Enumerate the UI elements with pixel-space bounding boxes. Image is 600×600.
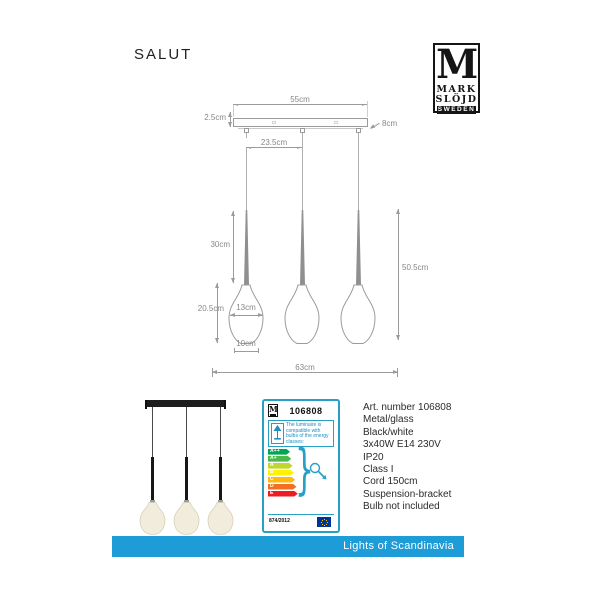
- rod-drawing: [356, 210, 361, 285]
- spec-line: Metal/glass: [363, 414, 451, 426]
- energy-label-brand-monogram: M: [269, 405, 277, 413]
- dimension-line: [233, 211, 234, 283]
- energy-class-bar-A+: A+: [268, 456, 291, 462]
- plate-mark: [272, 121, 276, 124]
- eu-flag-icon: [317, 517, 331, 527]
- footer-bar: Lights of Scandinavia: [112, 536, 464, 557]
- energy-class-bar-C: C: [268, 477, 295, 483]
- spec-line: Black/white: [363, 427, 451, 439]
- spec-line: Class I: [363, 464, 451, 476]
- energy-class-bar-B: B: [268, 470, 294, 476]
- cord-drawing: [358, 133, 359, 210]
- dimension-line: [233, 104, 367, 105]
- spec-line: Suspension-bracket: [363, 489, 451, 501]
- energy-class-label: A+: [268, 456, 291, 462]
- rod-drawing: [300, 210, 305, 285]
- energy-class-label: A++: [268, 449, 290, 455]
- energy-label-brand-bar: [270, 414, 276, 416]
- label-divider: [268, 514, 334, 515]
- dim-shade-width: 13cm: [229, 303, 263, 312]
- dim-plate-width: 55cm: [233, 95, 367, 104]
- shade-outline: [339, 284, 377, 345]
- ceiling-bar-photo: [145, 400, 226, 407]
- rod-drawing: [244, 210, 249, 285]
- energy-label-brand-logo: M: [268, 404, 278, 417]
- dimension-line: [217, 283, 218, 343]
- glass-shade-photo: [173, 502, 200, 535]
- product-datasheet: SALUT M MARK SLÖJD SWEDEN 55cm 2.5cm 8cm: [0, 0, 600, 600]
- cord-photo: [152, 407, 153, 458]
- plate-mark: [334, 121, 338, 124]
- dimension-line: [367, 101, 368, 117]
- spec-line: IP20: [363, 452, 451, 464]
- dimension-line: [212, 372, 398, 373]
- dimension-line: [398, 209, 399, 340]
- regulation-number: 874/2012: [269, 518, 290, 524]
- rod-photo: [185, 457, 188, 502]
- lamp-icon-box: [271, 423, 284, 444]
- brand-logo: M MARK SLÖJD SWEDEN: [433, 43, 480, 113]
- spec-line: Bulb not included: [363, 501, 451, 513]
- cord-photo: [186, 407, 187, 458]
- article-number: 106808: [278, 406, 334, 416]
- energy-class-label: C: [268, 477, 295, 483]
- dim-rod-length: 30cm: [198, 240, 230, 249]
- footer-label: Lights of Scandinavia: [343, 540, 464, 552]
- bulb-arrow-icon: [308, 461, 330, 483]
- spec-line: 3x40W E14 230V: [363, 439, 451, 451]
- eu-stars: [324, 522, 325, 523]
- energy-class-label: D: [268, 484, 297, 490]
- brand-country: SWEDEN: [437, 106, 476, 114]
- energy-class-bar-E: E: [268, 491, 298, 497]
- energy-class-bar-A: A: [268, 463, 293, 469]
- glass-shade-photo: [207, 502, 234, 535]
- cord-drawing: [302, 133, 303, 210]
- rod-photo: [151, 457, 154, 502]
- spec-line: Cord 150cm: [363, 476, 451, 488]
- specification-list: Art. number 106808Metal/glassBlack/white…: [363, 402, 451, 514]
- dimension-line: [230, 112, 231, 127]
- energy-class-bar-D: D: [268, 484, 297, 490]
- spec-line: Art. number 106808: [363, 402, 451, 414]
- dimension-line: [234, 351, 259, 352]
- cord-photo: [220, 407, 221, 458]
- table-lamp-icon: [273, 425, 282, 442]
- dim-drop-length: 50.5cm: [402, 263, 428, 272]
- energy-class-bar-A++: A++: [268, 449, 290, 455]
- energy-class-label: E: [268, 491, 298, 497]
- page-title: SALUT: [134, 46, 192, 63]
- rod-photo: [219, 457, 222, 502]
- dimension-line: [230, 315, 263, 316]
- dim-shade-height: 20.5cm: [190, 304, 224, 313]
- energy-label: M 106808 The luminaire is compatible wit…: [262, 399, 340, 533]
- dim-plate-depth: 8cm: [382, 119, 397, 128]
- dim-total-width: 63cm: [212, 363, 398, 372]
- dimension-line: [246, 147, 302, 148]
- energy-class-label: B: [268, 470, 294, 476]
- glass-shade-photo: [139, 502, 166, 535]
- shade-outline: [283, 284, 321, 345]
- dim-cord-spacing: 23.5cm: [246, 138, 302, 147]
- brand-name-line2: SLÖJD: [435, 95, 478, 105]
- dimension-arrow: [371, 123, 380, 129]
- energy-class-list: A++A+ABCDE: [268, 449, 298, 498]
- brand-monogram-icon: M: [436, 45, 477, 85]
- ceiling-plate: [233, 118, 368, 127]
- energy-class-label: A: [268, 463, 293, 469]
- dim-plate-height: 2.5cm: [192, 113, 226, 122]
- dim-shade-bottom-width: 10cm: [229, 339, 263, 348]
